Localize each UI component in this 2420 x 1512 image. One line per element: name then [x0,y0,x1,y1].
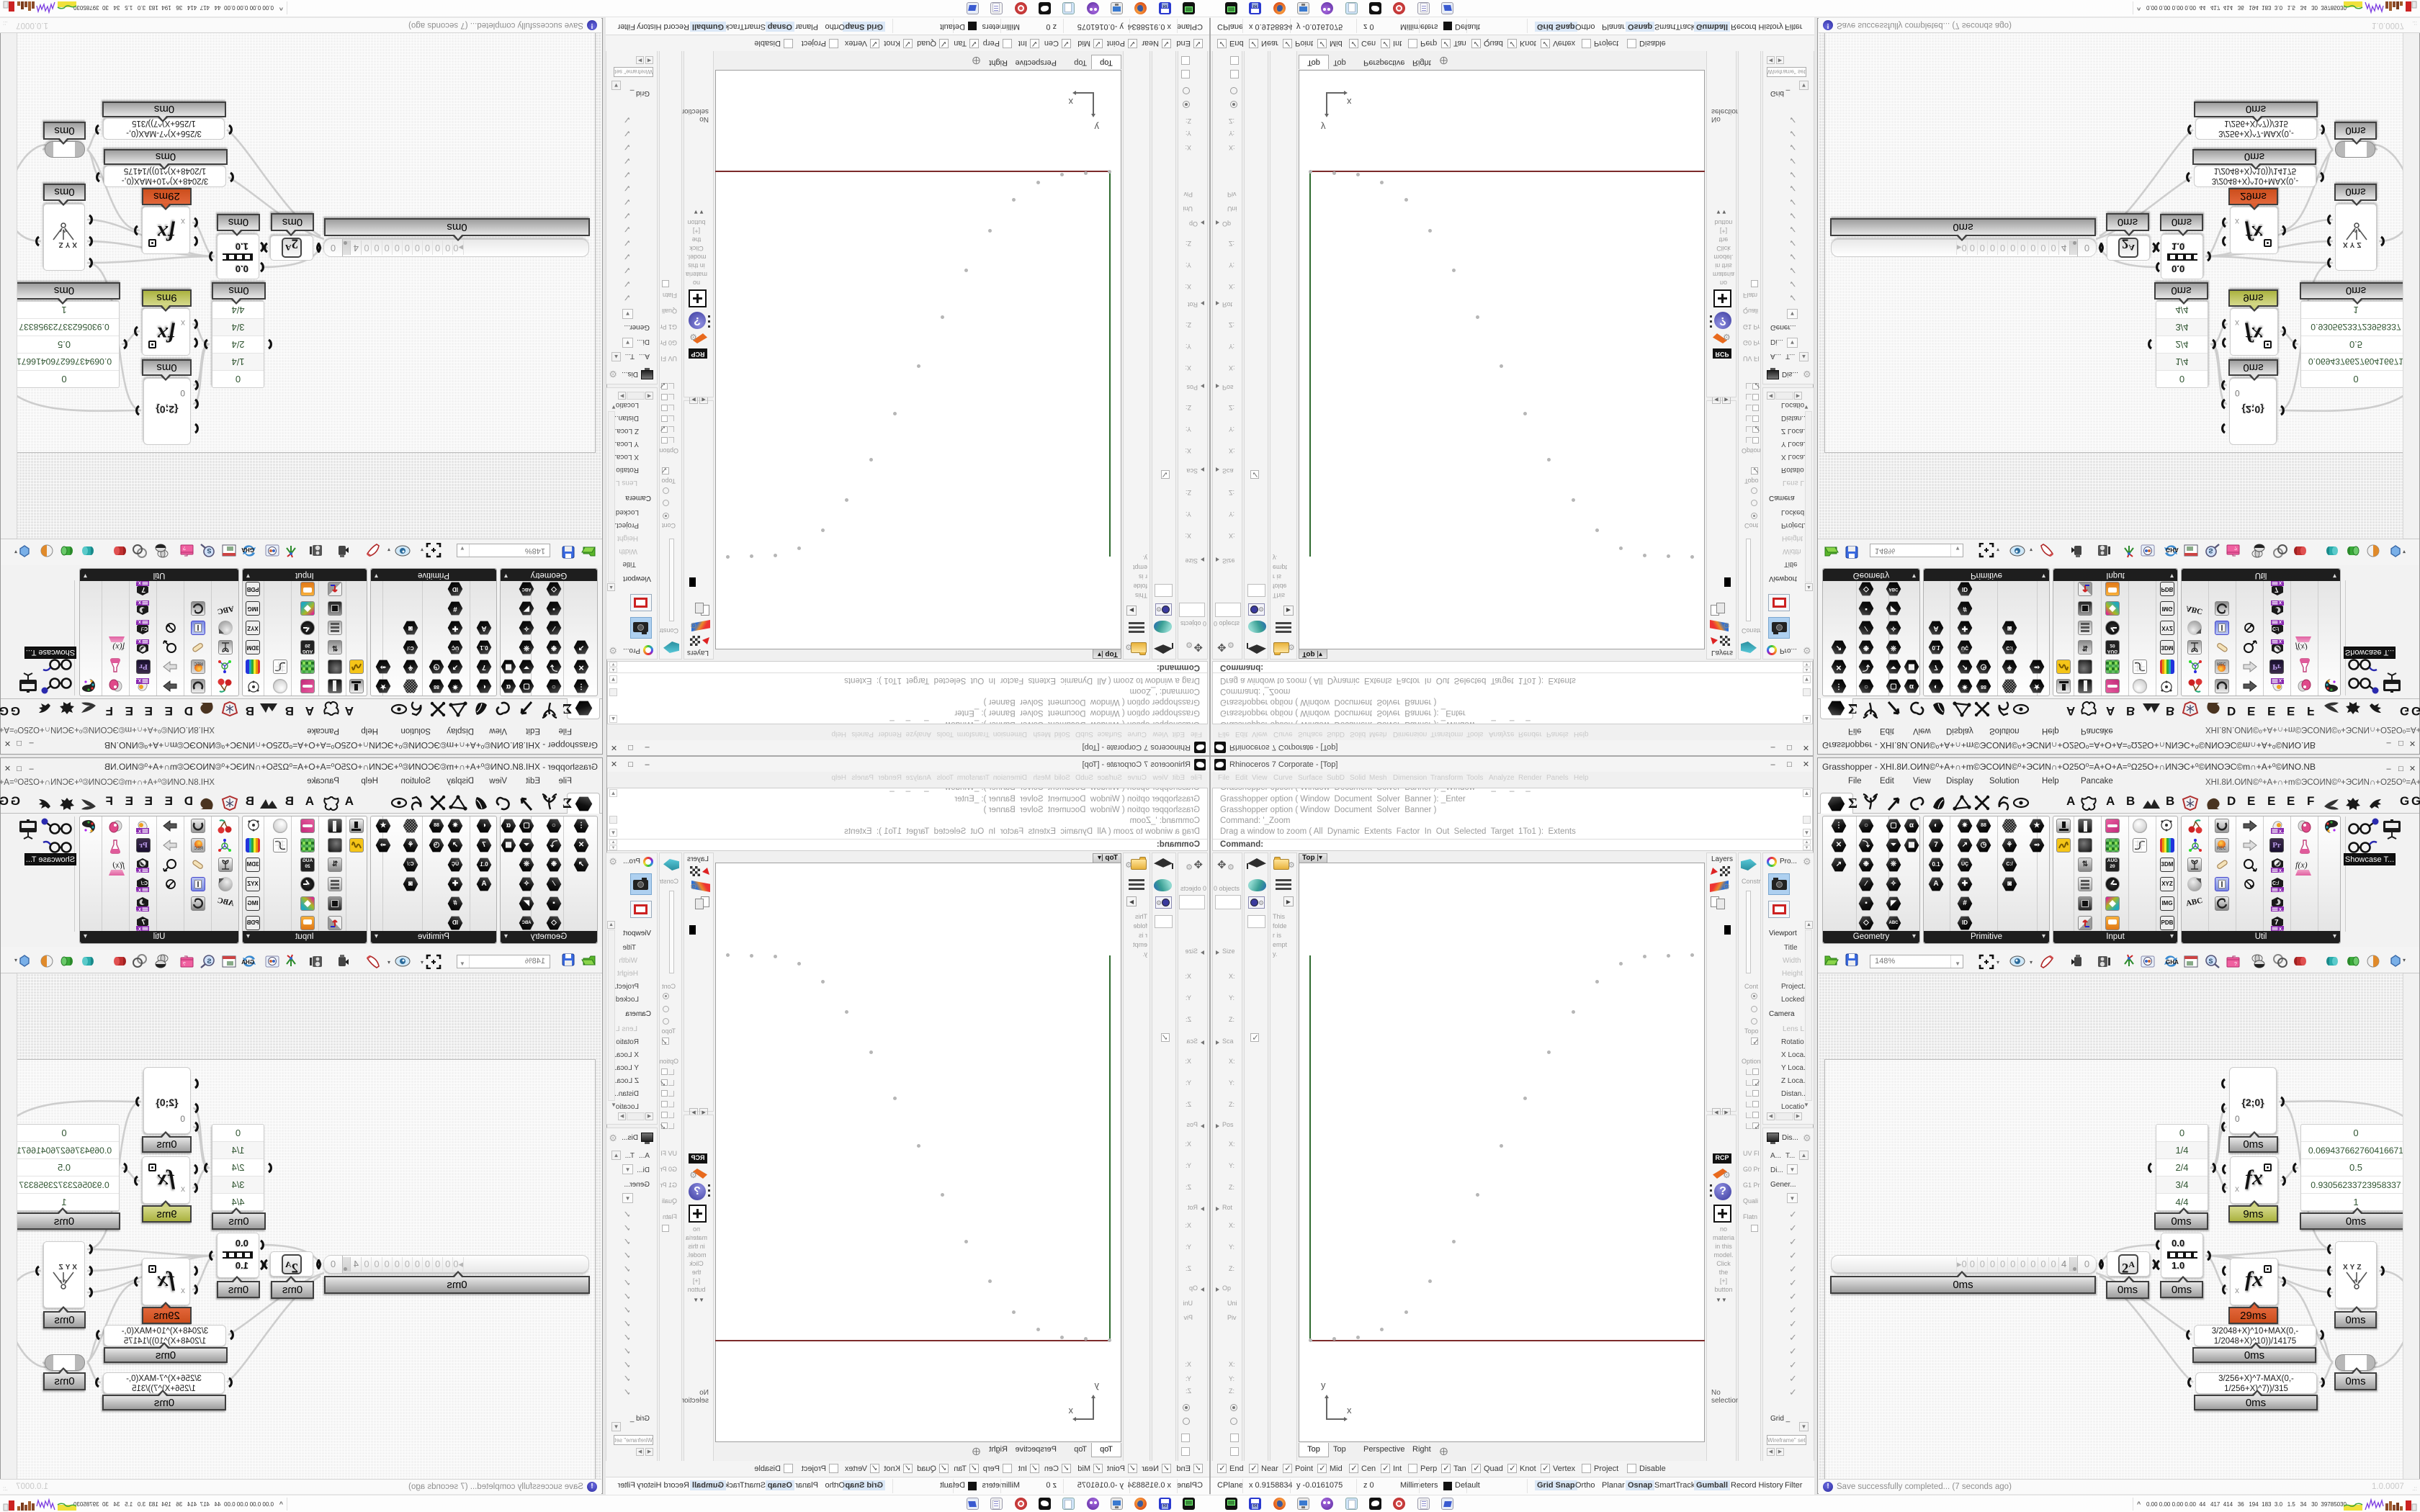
svg-text:X..: X.. [135,889,141,894]
svg-text:X..: X.. [135,909,141,913]
svg-text:7: 7 [2275,919,2279,927]
svg-text:7: 7 [141,585,145,593]
svg-text:X..: X.. [135,870,141,874]
svg-text:X..: X.. [2279,678,2285,682]
svg-text:X..: X.. [2279,619,2285,624]
svg-text:?: ? [183,962,186,967]
svg-text:Σ: Σ [1848,796,1857,811]
svg-text:XYZ: XYZ [57,1264,77,1272]
svg-text:XYZ: XYZ [2343,240,2363,248]
svg-text:X..: X.. [135,619,141,624]
svg-text:S: S [207,958,211,965]
svg-text:X..: X.. [2279,889,2285,894]
svg-text:C:/: C:/ [2272,881,2279,886]
svg-text:C:/: C:/ [141,881,148,886]
svg-text:?: ? [2234,962,2237,967]
svg-text:Σ: Σ [1848,701,1857,716]
svg-text:C:/: C:/ [2272,626,2279,631]
svg-text:Σ: Σ [563,796,572,811]
svg-text:C:/: C:/ [141,626,148,631]
svg-text:X..: X.. [2279,639,2285,643]
svg-text:GHA: GHA [241,959,254,966]
svg-text:X..: X.. [2279,909,2285,913]
svg-text:GHA: GHA [241,546,254,553]
svg-text:X..: X.. [2279,870,2285,874]
svg-text:S: S [207,547,211,554]
svg-text:GHA: GHA [2166,546,2179,553]
svg-text:S: S [2209,547,2213,554]
svg-text:7: 7 [141,919,145,927]
svg-text:?: ? [183,545,186,550]
svg-text:GHA: GHA [2166,959,2179,966]
svg-text:S: S [2209,958,2213,965]
svg-text:X..: X.. [2279,830,2285,834]
svg-text:X..: X.. [135,639,141,643]
svg-text:X..: X.. [135,600,141,604]
svg-text:XYZ: XYZ [2343,1264,2363,1272]
svg-text:X..: X.. [2279,600,2285,604]
svg-text:X..: X.. [135,830,141,834]
svg-text:XYZ: XYZ [57,240,77,248]
svg-text:?: ? [2234,545,2237,550]
svg-text:X..: X.. [135,678,141,682]
svg-text:Σ: Σ [563,701,572,716]
svg-text:7: 7 [2275,585,2279,593]
